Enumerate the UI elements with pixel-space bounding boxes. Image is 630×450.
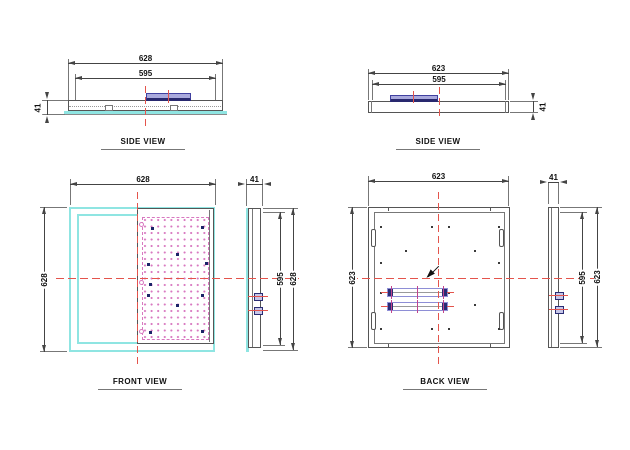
board-notch (139, 222, 144, 227)
dimension-outer-height: 623 (597, 207, 598, 347)
dimension-thickness: 41 (246, 184, 263, 185)
dimension-label: 623 (430, 65, 447, 73)
led-chip (149, 283, 152, 286)
driver-tick (417, 300, 418, 313)
dimension-width: 623 (368, 181, 509, 182)
engineering-drawing-canvas: 628 595 41 SIDE VIEW 623 595 (0, 0, 630, 450)
led-chip (147, 263, 150, 266)
view-title-side-left: SIDE VIEW (101, 138, 185, 150)
screw-hole (405, 250, 407, 252)
view-title-front: FRONT VIEW (98, 378, 182, 390)
driver-tick (443, 286, 444, 299)
driver-tick (391, 300, 392, 313)
edge-tick (490, 344, 491, 348)
extension-line (42, 100, 68, 101)
dimension-label: 623 (430, 173, 447, 181)
driver-tick (391, 286, 392, 299)
screw-hole (431, 226, 433, 228)
screw-hole (448, 328, 450, 330)
dimension-label: 623 (594, 268, 602, 285)
screw-hole (474, 304, 476, 306)
dimension-inner-width: 595 (75, 78, 216, 79)
led-board-inner-edge (209, 210, 210, 342)
board-notch (139, 280, 144, 285)
extension-line (222, 59, 223, 100)
screw-hole (380, 328, 382, 330)
centerline-vertical (137, 192, 138, 366)
led-chip (176, 253, 179, 256)
dimension-outer-height: 628 (293, 208, 294, 350)
connector-centerline (248, 310, 268, 311)
screw-hole (498, 226, 500, 228)
led-chip (201, 330, 204, 333)
dimension-width: 628 (70, 184, 216, 185)
led-chip (151, 227, 154, 230)
dimension-outer-width: 623 (368, 73, 509, 74)
dimension-label: 595 (579, 269, 587, 286)
connector (555, 306, 564, 314)
dimension-outer-width: 628 (68, 63, 223, 64)
dimension-label: 595 (430, 76, 447, 84)
driver-tick (417, 286, 418, 299)
led-chip (176, 304, 179, 307)
board-notch (139, 329, 144, 334)
centerline-vertical (439, 87, 440, 120)
led-chip (147, 294, 150, 297)
dimension-inner-height: 595 (582, 212, 583, 343)
extension-line (68, 59, 69, 100)
dimension-height: 623 (352, 207, 353, 348)
dimension-inner-height: 595 (280, 212, 281, 345)
dimension-inner-width: 595 (372, 84, 506, 85)
screw-hole (448, 226, 450, 228)
extension-line (560, 343, 587, 344)
centerline-vertical (438, 192, 439, 366)
extension-line (263, 350, 298, 351)
centerline-vertical (145, 86, 146, 128)
dimension-label: 628 (137, 55, 154, 63)
dimension-label: 41 (539, 100, 547, 113)
view-title-side-right: SIDE VIEW (396, 138, 480, 150)
housing-inner-line (371, 101, 372, 113)
dimension-label: 41 (35, 101, 43, 114)
extension-line (263, 345, 285, 346)
led-chip (201, 294, 204, 297)
dimension-height: 628 (44, 207, 45, 352)
screw-hole (380, 226, 382, 228)
led-chip (149, 331, 152, 334)
view-title-back: BACK VIEW (403, 378, 487, 390)
centerline-horizontal (56, 278, 299, 279)
edge-tick (490, 207, 491, 211)
mounting-slot (371, 229, 376, 247)
driver-tick (443, 300, 444, 313)
edge-tick (388, 344, 389, 348)
mounting-slot (499, 229, 504, 247)
screw-hole (498, 262, 500, 264)
dimension-thickness: 41 (548, 182, 559, 183)
connector-centerline (549, 309, 568, 310)
connector-centerline (549, 295, 568, 296)
housing-inner-line (505, 101, 506, 113)
led-chip (205, 262, 208, 265)
dimension-label: 595 (137, 70, 154, 78)
centerline-horizontal (350, 278, 602, 279)
dimension-label: 41 (248, 176, 261, 184)
screw-hole (431, 328, 433, 330)
screw-hole (498, 328, 500, 330)
dimension-label: 595 (277, 270, 285, 287)
dimension-thickness: 41 (533, 101, 534, 112)
screw-hole (380, 262, 382, 264)
extension-line (560, 347, 602, 348)
connector (555, 292, 564, 300)
driver-centerline (168, 90, 169, 103)
dimension-label: 628 (290, 270, 298, 287)
connector (254, 293, 263, 301)
connector-centerline (248, 296, 268, 297)
screw-hole (474, 250, 476, 252)
led-chip (201, 226, 204, 229)
dimension-label: 628 (134, 176, 151, 184)
driver-box-side (390, 95, 438, 102)
driver-centerline (413, 91, 414, 103)
mounting-slot (371, 312, 376, 330)
dimension-label: 623 (349, 269, 357, 286)
dimension-label: 41 (547, 174, 560, 182)
extension-line (42, 114, 65, 115)
dimension-label: 628 (41, 271, 49, 288)
connector (254, 307, 263, 315)
edge-tick (388, 207, 389, 211)
dimension-thickness: 41 (47, 100, 48, 115)
